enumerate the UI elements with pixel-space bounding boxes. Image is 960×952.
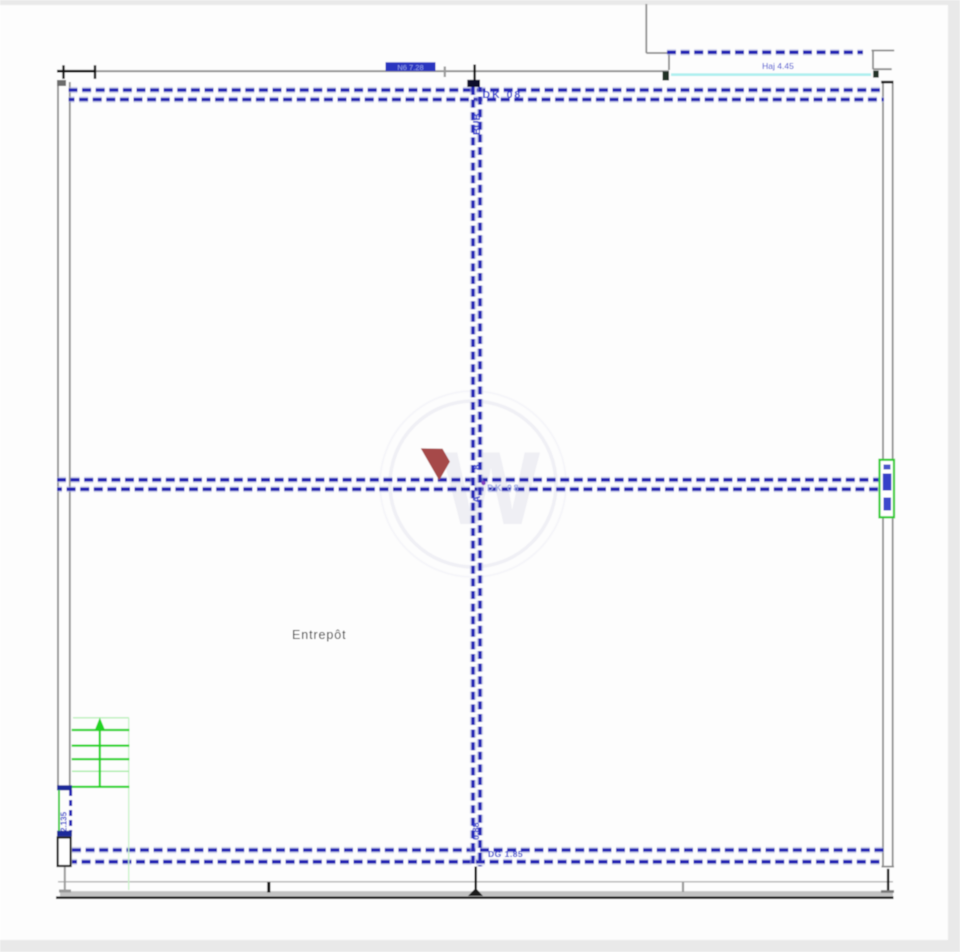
svg-text:Haj 4.45: Haj 4.45	[762, 61, 794, 71]
svg-text:BUB: BUB	[472, 113, 483, 135]
svg-text:DK 08: DK 08	[487, 483, 520, 493]
svg-text:DG 1.85: DG 1.85	[488, 849, 523, 859]
svg-text:0.88: 0.88	[471, 822, 481, 840]
svg-text:DK 08: DK 08	[483, 89, 523, 101]
svg-text:Entrepôt: Entrepôt	[292, 628, 346, 642]
svg-text:N6 7.28: N6 7.28	[397, 63, 423, 72]
svg-text:8: 8	[472, 464, 483, 470]
svg-text:A: A	[472, 496, 483, 503]
svg-text:2.135: 2.135	[60, 811, 69, 832]
